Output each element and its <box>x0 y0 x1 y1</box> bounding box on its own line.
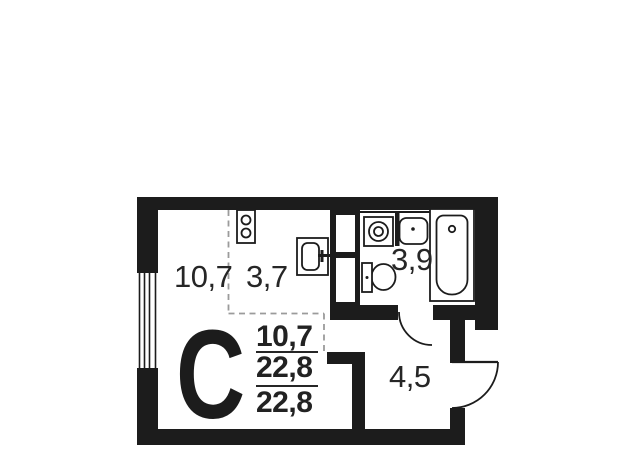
studio-type-letter: С <box>176 304 245 445</box>
wall-segment-top <box>137 197 498 210</box>
wall-segment-hallway-right-lower <box>450 408 465 445</box>
bathroom-sink-icon <box>400 218 428 244</box>
bathroom-sink-drain <box>411 227 415 231</box>
bathtub-icon <box>430 209 474 301</box>
hallway-area-label: 4,5 <box>389 361 431 392</box>
entrance-door <box>452 362 498 408</box>
toilet-button <box>366 276 369 279</box>
wall-segment-left-upper <box>137 197 158 273</box>
wall-segment-bathroom-bottom-right <box>433 305 498 320</box>
bathroom-area-label: 3,9 <box>391 244 433 275</box>
floorplan-page: С 10,7 3,7 3,9 4,5 10,7 22,8 22,8 <box>0 0 640 474</box>
vent-shaft-void <box>336 215 355 252</box>
bathtub-drain <box>449 226 455 232</box>
summary-total-area: 22,8 <box>256 353 312 383</box>
vent-shaft-void <box>336 258 355 302</box>
summary-living-area: 10,7 <box>256 322 312 352</box>
entrance-door-swing-arc <box>452 362 498 408</box>
bathroom-door-swing-arc <box>399 312 432 345</box>
living-room-area-label: 10,7 <box>174 261 232 292</box>
washing-machine-icon <box>364 217 393 246</box>
kitchen-sink-basin <box>302 243 319 270</box>
floorplan-drawing: С <box>0 0 640 474</box>
vent-shaft-voids <box>336 215 355 302</box>
window <box>137 273 158 368</box>
stove-burner <box>242 216 251 225</box>
kitchen-sink-icon <box>297 238 331 275</box>
washing-machine-drum-inner <box>374 227 383 236</box>
wall-segment-hallway-right-upper <box>450 308 465 363</box>
stove-burner <box>242 229 251 238</box>
wall-segment-partition-vertical <box>352 352 365 430</box>
kitchen-sink-faucet-spout <box>318 254 331 257</box>
summary-reduced-total-area: 22,8 <box>256 388 312 418</box>
kitchen-zone-area-label: 3,7 <box>246 261 288 292</box>
bathroom-sink-basin <box>400 218 428 244</box>
stove-icon <box>237 210 255 243</box>
